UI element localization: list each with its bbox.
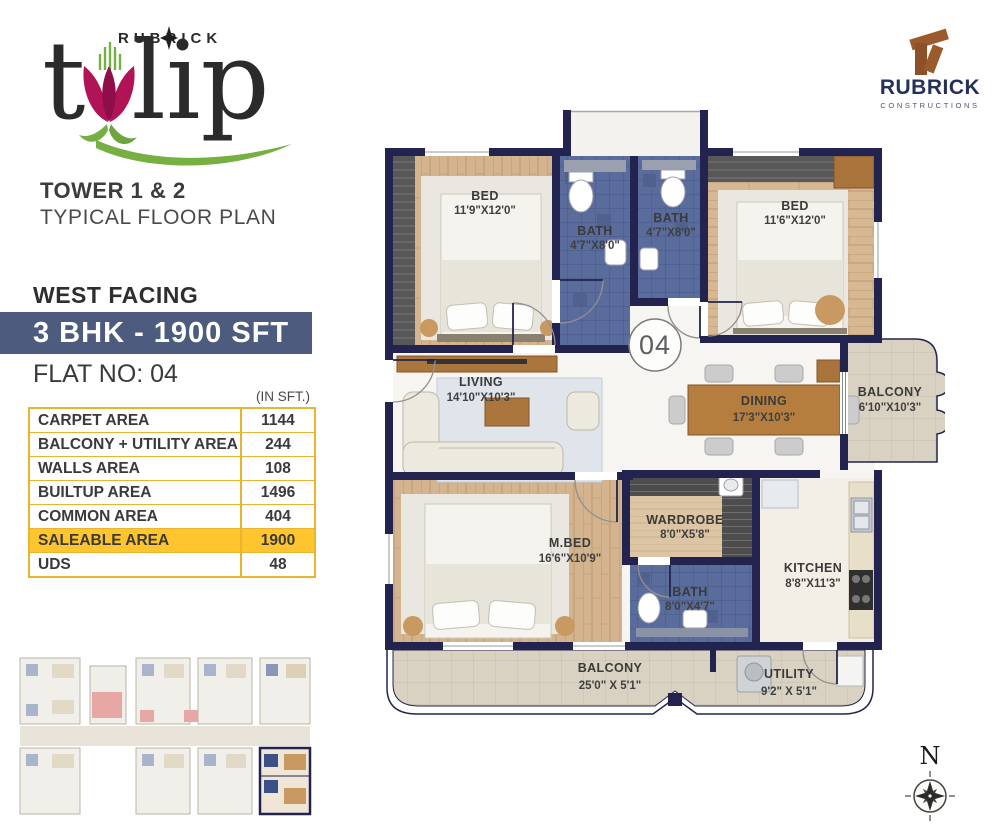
utility-dims: 9'2" X 5'1": [761, 686, 817, 698]
row-value: 244: [240, 433, 314, 456]
row-value: 1900: [240, 529, 314, 552]
tulip-stamen-lines: [100, 42, 120, 70]
bath1-dims: 4'7"X8'0": [570, 240, 620, 252]
table-row-uds: UDS 48: [30, 553, 314, 576]
row-label: BALCONY + UTILITY AREA: [30, 433, 240, 456]
kitchen-label: KITCHEN: [784, 561, 842, 575]
row-label: BUILTUP AREA: [30, 481, 240, 504]
utility-label: UTILITY: [764, 667, 814, 681]
balcony-right-dims: 6'10"X10'3": [859, 402, 921, 414]
balcony-right-label: BALCONY: [858, 385, 923, 399]
unit-number: 04: [639, 330, 671, 360]
logo-letters-lip: lip: [131, 28, 269, 136]
table-row-carpet: CARPET AREA 1144: [30, 409, 314, 433]
master-bed-dims: 16'6"X10'9": [539, 553, 601, 565]
living-dims: 14'10"X10'3": [447, 392, 516, 404]
bath3-dims: 8'0"X4'7": [665, 601, 715, 613]
wardrobe-dims: 8'0"X5'8": [660, 529, 710, 541]
table-row-saleable-highlighted: SALEABLE AREA 1900: [30, 529, 314, 553]
row-value: 404: [240, 505, 314, 528]
compass-rose-icon: N: [900, 742, 960, 828]
company-tagline: CONSTRUCTIONS: [868, 101, 992, 110]
row-label: WALLS AREA: [30, 457, 240, 480]
bed1-dims: 11'9"X12'0": [454, 205, 516, 217]
facing-label: WEST FACING: [33, 282, 198, 309]
kitchen-dims: 8'8"X11'3": [785, 578, 840, 590]
bed1-label: BED: [471, 189, 499, 203]
compass-north-label: N: [920, 742, 941, 770]
key-plan-thumbnail: [12, 648, 317, 820]
key-plan-highlighted-unit: [260, 748, 310, 814]
bath3-label: BATH: [672, 585, 707, 599]
unit-type-banner: 3 BHK - 1900 SFT: [0, 312, 312, 354]
row-value: 108: [240, 457, 314, 480]
logo-sparkle-icon: [160, 26, 178, 50]
row-label: COMMON AREA: [30, 505, 240, 528]
logo-swash-icon: [96, 136, 296, 170]
balcony-bottom-dims: 25'0" X 5'1": [579, 680, 641, 692]
rubrick-monogram-icon: [906, 26, 954, 76]
company-name: RUBRICK: [868, 76, 992, 100]
bath1-label: BATH: [577, 224, 612, 238]
tower-title: TOWER 1 & 2: [40, 178, 186, 204]
row-label: SALEABLE AREA: [30, 529, 240, 552]
table-row-walls: WALLS AREA 108: [30, 457, 314, 481]
unit-type-text: 3 BHK - 1900 SFT: [33, 312, 312, 354]
flat-number-label: FLAT NO: 04: [33, 360, 178, 389]
living-label: LIVING: [459, 375, 503, 389]
dining-label: DINING: [741, 394, 787, 408]
master-bed-label: M.BED: [549, 536, 591, 550]
floor-plan-brochure: RUBRICK t lip TOWER 1 & 2 TYPICAL F: [0, 0, 1000, 833]
bed2-label: BED: [781, 199, 809, 213]
row-label: CARPET AREA: [30, 409, 240, 432]
row-value: 48: [240, 553, 314, 576]
table-row-builtup: BUILTUP AREA 1496: [30, 481, 314, 505]
row-label: UDS: [30, 553, 240, 576]
table-row-balcony-utility: BALCONY + UTILITY AREA 244: [30, 433, 314, 457]
unit-number-badge: 04: [629, 319, 681, 371]
units-note: (IN SFT.): [28, 389, 310, 404]
table-row-common: COMMON AREA 404: [30, 505, 314, 529]
plan-type-subtitle: TYPICAL FLOOR PLAN: [40, 206, 276, 230]
balcony-bottom-label: BALCONY: [578, 661, 643, 675]
area-table: CARPET AREA 1144 BALCONY + UTILITY AREA …: [28, 407, 316, 578]
wardrobe-label: WARDROBE: [646, 513, 724, 527]
tulip-petals: [84, 66, 135, 122]
floor-plan-drawing: 04 BED 11'9"X12'0" BATH 4'7"X8'0" BATH 4…: [385, 110, 945, 725]
key-plan-corridor: [20, 726, 310, 746]
row-value: 1496: [240, 481, 314, 504]
master-bed-furniture: [401, 494, 575, 638]
bath2-dims: 4'7"X8'0": [646, 227, 696, 239]
row-value: 1144: [240, 409, 314, 432]
bath2-label: BATH: [653, 211, 688, 225]
dining-dims: 17'3"X10'3": [733, 412, 795, 424]
bed2-dims: 11'6"X12'0": [764, 215, 826, 227]
